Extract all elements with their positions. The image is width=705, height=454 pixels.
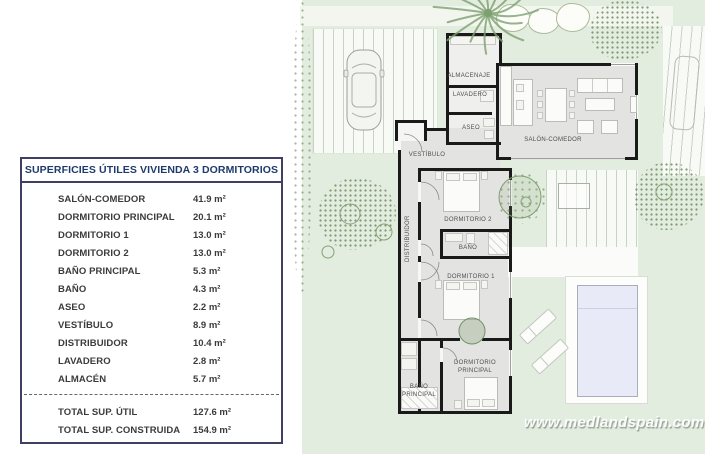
table-row: DORMITORIO PRINCIPAL20.1 m² — [58, 208, 267, 226]
room-name: ASEO — [58, 302, 193, 313]
wall — [398, 411, 512, 414]
bath-sink — [401, 342, 417, 356]
room-label-aseo: ASEO — [446, 125, 496, 133]
table-row: ASEO2.2 m² — [58, 298, 267, 316]
room-area: 5.7 m² — [193, 374, 267, 385]
garden-bushes — [318, 178, 396, 250]
pool — [577, 285, 638, 397]
room-name: BAÑO PRINCIPAL — [58, 266, 193, 277]
glazing — [511, 158, 625, 159]
wall — [635, 119, 638, 160]
room-name: VESTÍBULO — [58, 320, 193, 331]
room-name: DORMITORIO 2 — [58, 248, 193, 259]
room-label-lavadero: LAVADERO — [445, 92, 495, 100]
pillow — [467, 399, 480, 407]
chair — [537, 101, 543, 108]
wall — [498, 157, 511, 160]
room-label-dormitorio-principal: DORMITORIO PRINCIPAL — [442, 360, 508, 375]
outdoor-table — [558, 183, 590, 209]
room-label-bano-principal: BAÑO PRINCIPAL — [396, 384, 442, 399]
room-area: 13.0 m² — [193, 248, 267, 259]
nightstand — [435, 171, 442, 180]
hedge — [292, 0, 312, 295]
table-row: DISTRIBUIDOR10.4 m² — [58, 334, 267, 352]
corridor-floor — [400, 168, 420, 413]
room-name: TOTAL SUP. ÚTIL — [58, 407, 193, 418]
door-gap — [418, 240, 421, 256]
wall — [440, 229, 443, 259]
room-area: 154.9 m² — [193, 425, 267, 436]
door-gap — [418, 318, 421, 338]
wall — [446, 85, 496, 88]
room-area: 20.1 m² — [193, 212, 267, 223]
chair — [569, 112, 575, 119]
table-title: SUPERFICIES ÚTILES VIVIENDA 3 DORMITORIO… — [22, 159, 281, 183]
room-label-dormitorio2: DORMITORIO 2 — [428, 217, 508, 225]
room-area: 2.2 m² — [193, 302, 267, 313]
table-row: LAVADERO2.8 m² — [58, 352, 267, 370]
door-gap — [418, 262, 421, 282]
watermark: www.medlandspain.com — [524, 414, 700, 431]
nightstand — [454, 400, 462, 409]
room-name: LAVADERO — [58, 356, 193, 367]
table-row: ALMACÉN5.7 m² — [58, 370, 267, 388]
side-carport — [663, 26, 705, 176]
wall — [446, 142, 501, 145]
window — [509, 350, 512, 376]
room-label-distribuidor: DISTRIBUIDOR — [405, 208, 413, 270]
room-name: BAÑO — [58, 284, 193, 295]
chair — [569, 101, 575, 108]
table-row: TOTAL SUP. ÚTIL127.6 m² — [58, 403, 267, 421]
sun-lounger — [519, 308, 557, 344]
room-name: SALÓN-COMEDOR — [58, 194, 193, 205]
room-label-vestibulo: VESTÍBULO — [397, 152, 457, 160]
pool-step-line — [578, 308, 637, 309]
table-row: VESTÍBULO8.9 m² — [58, 316, 267, 334]
table-row: BAÑO PRINCIPAL5.3 m² — [58, 262, 267, 280]
sink — [516, 100, 524, 110]
toilet — [401, 358, 417, 370]
table-row: DORMITORIO 113.0 m² — [58, 226, 267, 244]
tv-unit — [630, 96, 637, 113]
wall — [499, 33, 502, 66]
bath-sink — [445, 233, 463, 242]
wall — [418, 171, 421, 411]
wall — [482, 338, 512, 341]
armchair — [577, 120, 594, 134]
wall — [499, 63, 611, 66]
room-name: TOTAL SUP. CONSTRUIDA — [58, 425, 193, 436]
door-gap — [418, 182, 421, 202]
room-name: DISTRIBUIDOR — [58, 338, 193, 349]
wall — [440, 256, 509, 259]
wall — [446, 112, 492, 115]
wall — [625, 157, 638, 160]
bush — [528, 8, 560, 34]
wall — [496, 63, 499, 160]
room-label-almacenaje: ALMACENAJE — [444, 73, 494, 81]
table-row: DORMITORIO 213.0 m² — [58, 244, 267, 262]
room-area: 4.3 m² — [193, 284, 267, 295]
table-row: BAÑO4.3 m² — [58, 280, 267, 298]
terrace-pergola — [546, 170, 638, 248]
surface-totals: TOTAL SUP. ÚTIL127.6 m²TOTAL SUP. CONSTR… — [22, 395, 281, 439]
wall — [635, 63, 638, 95]
dining-table — [545, 88, 567, 122]
pillow — [463, 173, 477, 181]
page: SUPERFICIES ÚTILES VIVIENDA 3 DORMITORIO… — [0, 0, 705, 454]
room-area: 41.9 m² — [193, 194, 267, 205]
hob — [516, 84, 524, 92]
surface-rows: SALÓN-COMEDOR41.9 m²DORMITORIO PRINCIPAL… — [22, 183, 281, 388]
coffee-table — [585, 98, 615, 111]
room-name: ALMACÉN — [58, 374, 193, 385]
room-area: 2.8 m² — [193, 356, 267, 367]
deck — [508, 247, 638, 277]
room-area: 5.3 m² — [193, 266, 267, 277]
garden-bushes — [634, 162, 704, 230]
sun-lounger — [531, 338, 569, 374]
room-label-bano: BAÑO — [438, 245, 498, 253]
nightstand — [481, 171, 488, 180]
room-name: DORMITORIO PRINCIPAL — [58, 212, 193, 223]
entrance-porch — [395, 120, 427, 141]
storage-shelf — [450, 36, 496, 45]
room-area: 127.6 m² — [193, 407, 267, 418]
window — [611, 63, 635, 66]
surface-table: SUPERFICIES ÚTILES VIVIENDA 3 DORMITORIO… — [20, 157, 283, 444]
room-area: 10.4 m² — [193, 338, 267, 349]
pillow — [446, 173, 460, 181]
chair — [569, 90, 575, 97]
table-row: SALÓN-COMEDOR41.9 m² — [58, 190, 267, 208]
pool-surround — [565, 276, 648, 404]
room-name: DORMITORIO 1 — [58, 230, 193, 241]
chair — [537, 112, 543, 119]
room-area: 8.9 m² — [193, 320, 267, 331]
sofa — [577, 78, 623, 93]
table-row: TOTAL SUP. CONSTRUIDA154.9 m² — [58, 421, 267, 439]
pillow — [463, 282, 477, 290]
armchair — [601, 120, 618, 134]
bush — [496, 4, 530, 32]
pillow — [482, 399, 495, 407]
floor-plan: ALMACENAJE LAVADERO ASEO SALÓN-COMEDOR V… — [292, 0, 705, 454]
room-label-dormitorio1: DORMITORIO 1 — [431, 274, 511, 282]
pillow — [446, 282, 460, 290]
bush — [556, 3, 590, 32]
chair — [537, 90, 543, 97]
kitchen-counter — [500, 66, 512, 126]
toilet — [466, 233, 475, 244]
wall — [398, 338, 460, 341]
room-label-salon: SALÓN-COMEDOR — [513, 137, 593, 145]
tree-canopy — [590, 0, 662, 60]
wall — [398, 128, 401, 414]
room-area: 13.0 m² — [193, 230, 267, 241]
